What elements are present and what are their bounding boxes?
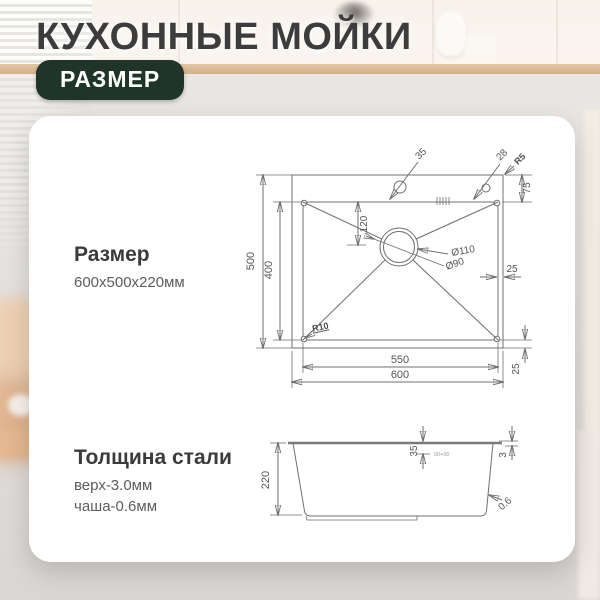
dim-bowl-corner-radius: R10 bbox=[305, 320, 329, 338]
dim-accessory-hole: 28 bbox=[474, 147, 510, 199]
svg-text:550: 550 bbox=[391, 354, 409, 366]
size-heading: Размер bbox=[74, 243, 150, 267]
svg-text:75: 75 bbox=[522, 182, 533, 194]
background-column bbox=[578, 430, 600, 600]
dish-stack bbox=[436, 12, 466, 56]
dim-drain-outer-diameter: Ø110 bbox=[418, 244, 476, 259]
background-column bbox=[584, 110, 600, 450]
svg-text:R5: R5 bbox=[512, 151, 527, 166]
thickness-heading: Толщина стали bbox=[74, 446, 232, 470]
svg-text:R10: R10 bbox=[311, 320, 329, 333]
svg-text:0.6: 0.6 bbox=[496, 495, 514, 513]
dim-faucet-hole: 35 bbox=[390, 146, 429, 199]
dim-drain-offset: 120 bbox=[347, 202, 370, 245]
svg-text:25: 25 bbox=[506, 264, 518, 275]
dim-inner-height: 400 bbox=[263, 202, 303, 340]
svg-text:28: 28 bbox=[494, 147, 510, 163]
svg-text:35: 35 bbox=[409, 445, 420, 457]
svg-text:220: 220 bbox=[260, 471, 272, 489]
svg-text:35: 35 bbox=[413, 146, 429, 162]
svg-text:120: 120 bbox=[359, 215, 370, 232]
tolerance-note: 00+00 bbox=[434, 452, 449, 458]
thickness-bowl-value: чаша-0.6мм bbox=[74, 498, 157, 515]
svg-text:600: 600 bbox=[391, 369, 409, 381]
dim-rim-right: 25 bbox=[480, 264, 521, 277]
svg-text:Ø110: Ø110 bbox=[451, 244, 477, 259]
dish-box bbox=[466, 36, 496, 57]
size-value: 600x500x220мм bbox=[74, 274, 185, 291]
dim-ledge-depth: 35 00+00 bbox=[409, 426, 449, 469]
cabinet-seam bbox=[556, 0, 558, 64]
size-badge: РАЗМЕР bbox=[36, 60, 184, 100]
svg-text:3: 3 bbox=[498, 452, 509, 458]
dim-depth: 220 bbox=[260, 443, 302, 515]
cabinet-seam bbox=[432, 0, 434, 64]
svg-text:500: 500 bbox=[245, 252, 257, 270]
dim-wall-thickness: 0.6 bbox=[489, 495, 514, 513]
product-banner: КУХОННЫЕ МОЙКИ РАЗМЕР Размер 600x500x220… bbox=[0, 0, 600, 600]
thickness-top-value: верх-3.0мм bbox=[74, 477, 152, 494]
overflow-hatch-marks bbox=[437, 197, 449, 205]
svg-text:400: 400 bbox=[263, 261, 275, 279]
sink-profile bbox=[288, 443, 502, 520]
page-title: КУХОННЫЕ МОЙКИ bbox=[36, 16, 412, 59]
svg-text:25: 25 bbox=[511, 363, 522, 375]
side-view-drawing: 220 35 00+00 3 0.6 bbox=[255, 418, 555, 548]
dim-rim-top: 75 bbox=[502, 175, 533, 202]
svg-text:Ø90: Ø90 bbox=[444, 256, 466, 273]
top-view-drawing: 500 400 550 600 75 25 bbox=[240, 133, 550, 395]
